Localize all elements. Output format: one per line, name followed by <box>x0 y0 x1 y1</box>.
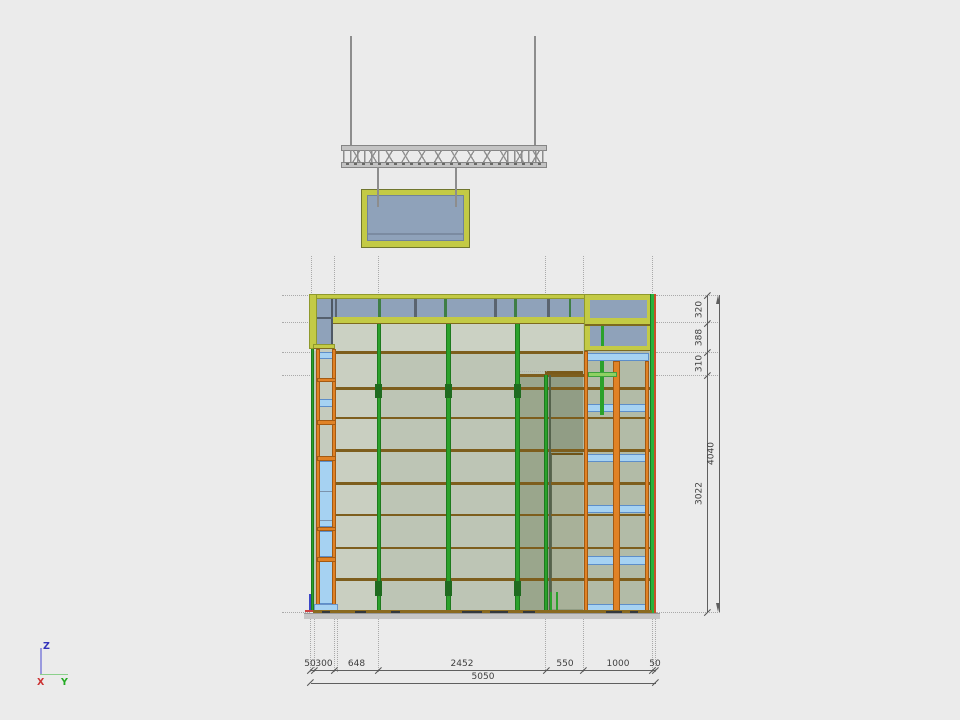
level-line <box>656 322 720 323</box>
base-mark <box>606 611 622 614</box>
right-box-glazing-1 <box>590 300 647 318</box>
base-strip <box>304 613 660 619</box>
green-mullion-door <box>544 375 549 612</box>
extension-line <box>311 256 312 295</box>
door-jamb-line <box>549 375 551 612</box>
ladder-rung <box>317 420 336 425</box>
level-line <box>656 612 720 613</box>
dim-arrow <box>716 603 720 612</box>
green-mullion <box>515 322 520 612</box>
base-mark <box>462 611 482 614</box>
screen-glass <box>367 195 464 241</box>
dim-line-total <box>311 683 656 684</box>
origin-x-mark <box>305 610 313 612</box>
origin-z-mark <box>309 594 311 611</box>
right-post-center <box>613 361 620 612</box>
level-line <box>282 322 310 323</box>
glazing-mullion <box>569 299 572 317</box>
truss-end-posts-right <box>507 150 545 162</box>
level-line <box>656 375 720 376</box>
green-mullion <box>446 322 451 612</box>
dim-label: 648 <box>332 659 382 669</box>
corner-yellow-post <box>309 294 317 349</box>
y-axis-line <box>40 674 68 676</box>
glazing-mullion <box>494 299 497 317</box>
ladder-rail-left <box>316 349 320 612</box>
glazing-mullion <box>514 299 517 317</box>
glazing-mullion <box>547 299 550 317</box>
mullion-connector <box>514 384 521 398</box>
ladder-rung <box>317 378 336 383</box>
dim-label: 310 <box>695 342 706 386</box>
level-line <box>282 352 310 353</box>
base-mark <box>391 611 400 614</box>
truss-tiny-label-band <box>346 163 542 165</box>
head-glazing-band <box>314 299 584 317</box>
screen-hanger-left-inside <box>377 189 379 207</box>
mullion-connector <box>375 581 382 596</box>
rail <box>336 387 652 390</box>
screen-hanger-right-inside <box>455 189 457 207</box>
shelf-strip <box>586 353 649 362</box>
truss-end-posts-left <box>343 150 381 162</box>
dim-label: 3022 <box>695 472 706 516</box>
extension-line <box>378 256 379 295</box>
base-mark <box>630 611 638 614</box>
glazing-mullion <box>414 299 417 317</box>
right-green-post <box>600 361 604 415</box>
right-box-glazing-2 <box>590 326 647 346</box>
corner-glazing-divider <box>317 317 333 319</box>
dim-arrow <box>716 295 720 304</box>
extension-line <box>652 256 653 295</box>
screen-inner-line <box>368 233 463 235</box>
green-mullion-left-edge <box>311 347 315 612</box>
hanger-cable-left <box>350 36 352 145</box>
dim-label: 50 <box>630 659 680 669</box>
z-axis-label: Z <box>43 641 50 652</box>
level-line <box>282 375 310 376</box>
mullion-connector <box>375 384 382 398</box>
green-stub <box>556 592 558 610</box>
level-line <box>656 295 720 296</box>
mullion-connector <box>514 581 521 596</box>
ladder-rung <box>317 527 336 532</box>
ladder-rung <box>317 456 336 461</box>
right-post <box>584 351 589 612</box>
edge-mullion-right <box>650 294 654 613</box>
z-axis-line <box>40 648 42 674</box>
glazing-mullion <box>444 299 447 317</box>
dim-line <box>311 670 656 671</box>
dim-tick <box>652 679 659 686</box>
rail <box>336 482 652 485</box>
right-yellow-box <box>584 294 652 352</box>
rail <box>336 514 652 517</box>
rail <box>336 547 652 550</box>
rail <box>336 578 652 581</box>
rail-door-head <box>517 374 588 377</box>
rail <box>336 351 583 354</box>
dim-label: 550 <box>540 659 590 669</box>
x-axis-label: X <box>37 677 44 688</box>
right-lightgreen-bar <box>588 372 617 378</box>
glazing-mullion <box>378 299 381 317</box>
rail <box>336 449 652 452</box>
level-line <box>656 352 720 353</box>
extension-line <box>545 256 546 295</box>
level-line <box>282 295 310 296</box>
corner-glazing <box>317 299 333 344</box>
extension-line <box>334 256 335 295</box>
mullion-connector <box>445 384 452 398</box>
base-mark <box>490 611 508 614</box>
level-line-overlay <box>517 371 547 372</box>
y-axis-label: Y <box>61 677 68 688</box>
base-mark <box>523 611 535 614</box>
ladder-rung <box>317 557 336 562</box>
dim-label-total: 5050 <box>458 672 508 682</box>
green-stub <box>550 592 552 610</box>
base-mark <box>355 611 366 614</box>
green-mullion <box>377 322 382 612</box>
dim-line-total <box>719 295 720 612</box>
base-mark <box>322 611 330 614</box>
mullion-connector <box>445 581 452 596</box>
right-post <box>645 361 649 612</box>
hanger-cable-right <box>534 36 536 145</box>
right-box-green-mullion <box>601 326 604 346</box>
edge-red-line <box>654 294 656 613</box>
dim-label-total: 4040 <box>707 432 718 476</box>
ladder-rail-right <box>332 349 336 612</box>
extension-line <box>583 256 584 295</box>
dim-label: 2452 <box>437 659 487 669</box>
glazing-mullion <box>335 299 338 317</box>
cad-viewport[interactable]: 320 388 310 3022 4040 50 300 648 2452 55… <box>0 0 960 720</box>
head-yellow-strip-2 <box>330 317 584 324</box>
rail <box>336 417 652 420</box>
door-leaf <box>551 453 583 609</box>
